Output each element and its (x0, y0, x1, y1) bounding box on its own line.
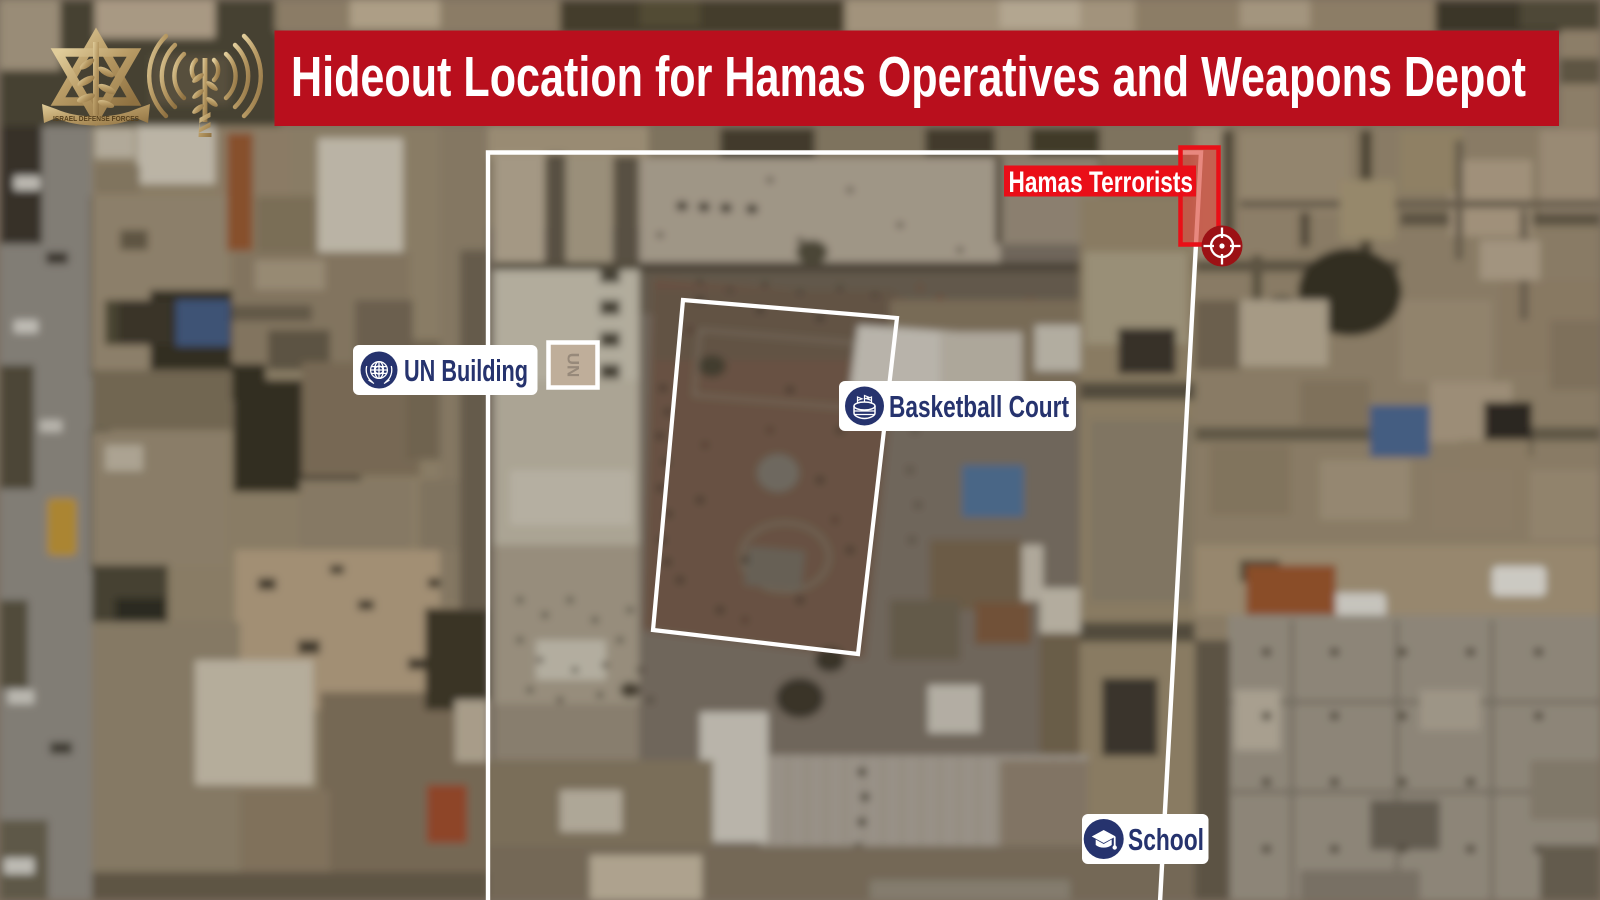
svg-text:UN Building: UN Building (404, 353, 528, 388)
svg-text:ISRAEL DEFENSE FORCES: ISRAEL DEFENSE FORCES (53, 114, 139, 123)
svg-text:Hideout Location for Hamas Ope: Hideout Location for Hamas Operatives an… (291, 45, 1526, 109)
svg-text:Hamas Terrorists: Hamas Terrorists (1009, 166, 1194, 199)
svg-text:Basketball Court: Basketball Court (889, 389, 1069, 424)
svg-text:UN: UN (564, 353, 583, 378)
svg-text:School: School (1128, 822, 1204, 857)
